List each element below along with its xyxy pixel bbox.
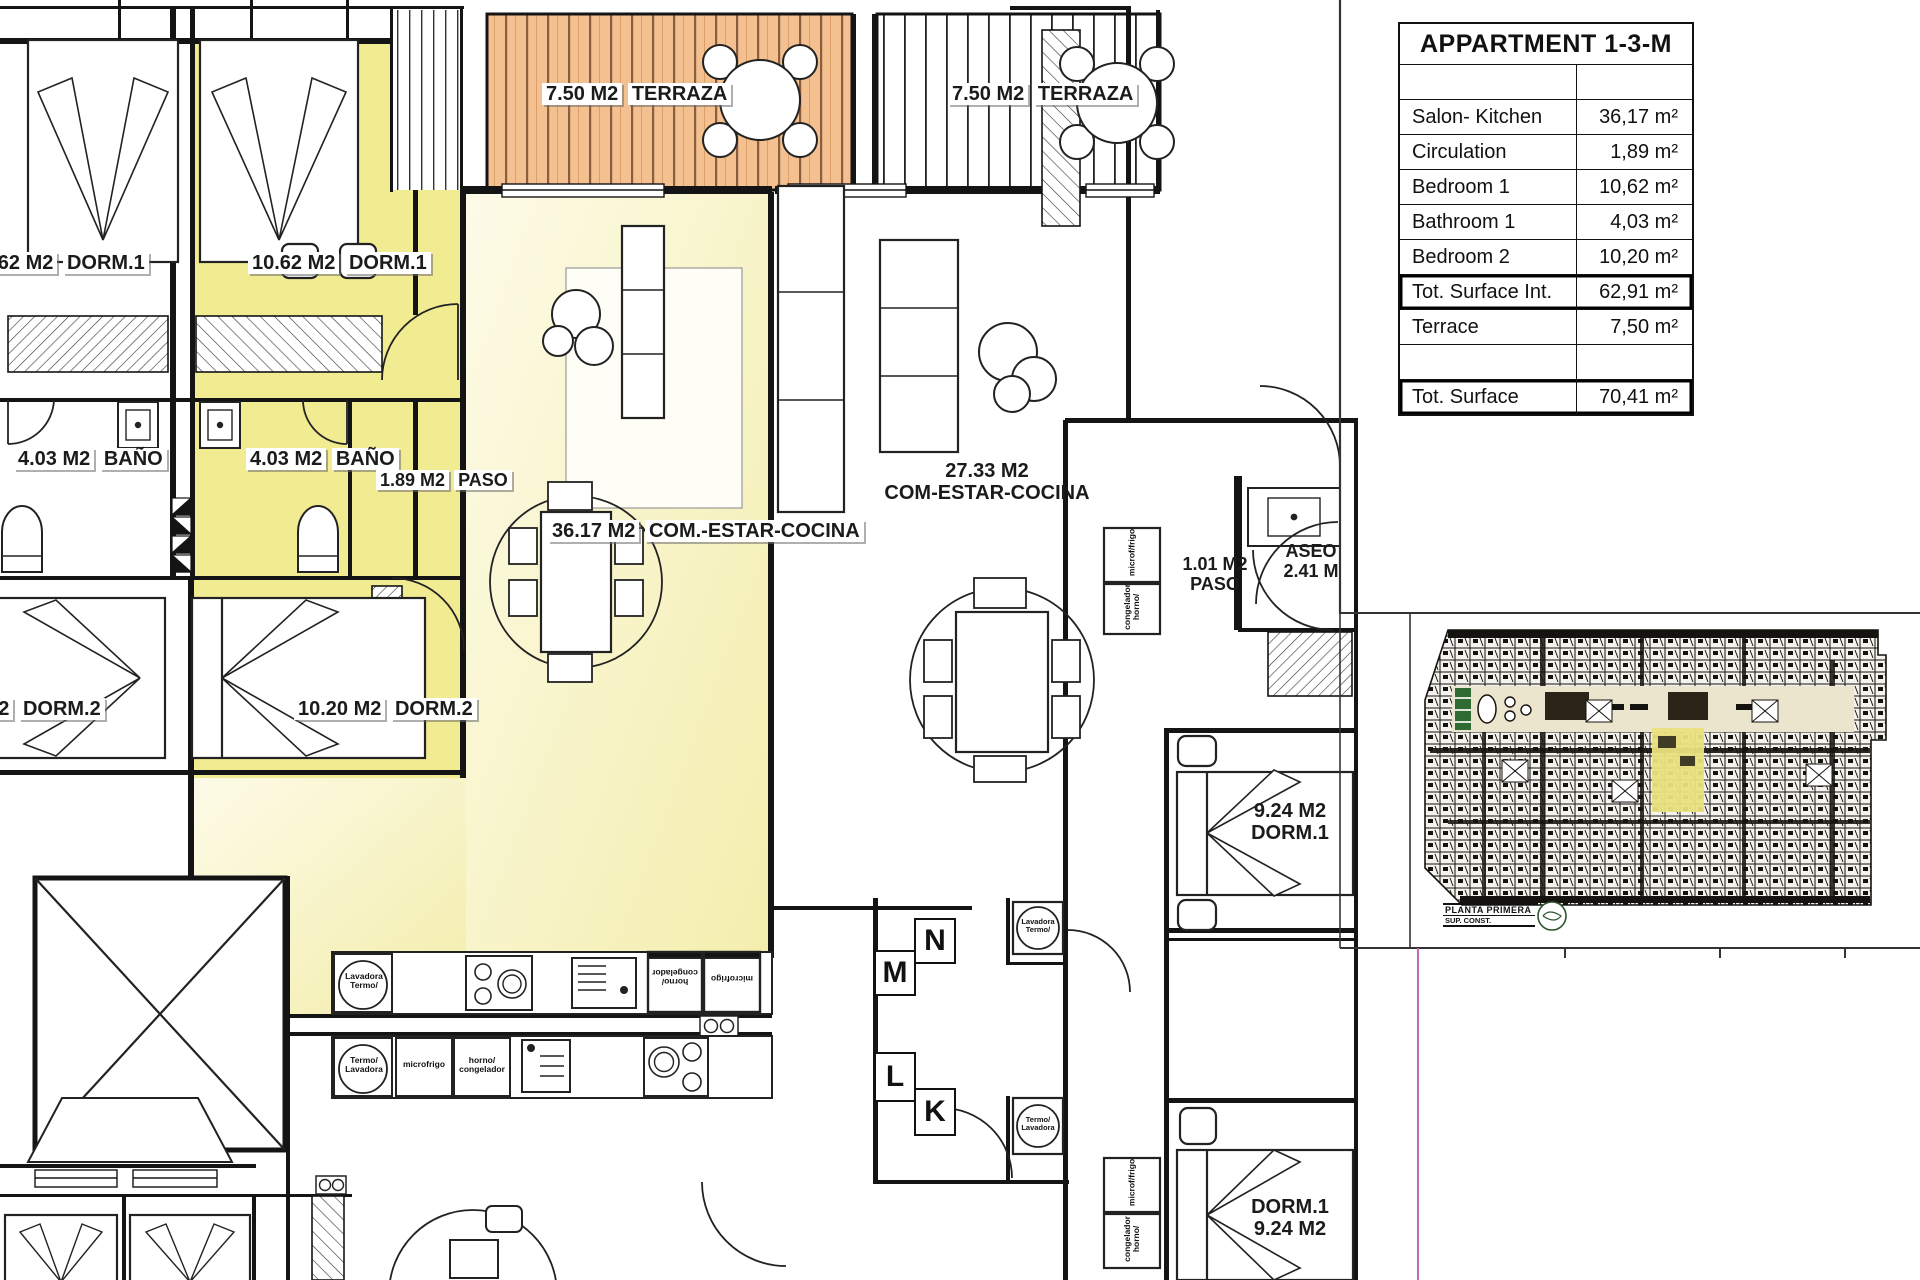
label-m-bathroom: 4.03 M2 BAÑO bbox=[246, 448, 350, 470]
label-right-aseo: ASEO 2.41 M bbox=[1282, 541, 1340, 581]
unit-letter-n: N bbox=[914, 918, 956, 964]
table-row: Terrace7,50 m² bbox=[1400, 310, 1692, 345]
key-plan bbox=[1425, 630, 1886, 930]
table-row-total: Tot. Surface70,41 m² bbox=[1400, 380, 1692, 414]
label-left-bathroom: 4.03 M2 BAÑO bbox=[14, 448, 118, 470]
oven-freezer-label-lower: horno/congelador bbox=[456, 1056, 508, 1074]
washer-label-lower: Termo/Lavadora bbox=[336, 1056, 392, 1074]
freezer-label-k: congeladorhorno/ bbox=[1123, 1211, 1141, 1267]
label-right-hall: 1.01 M2 PASO bbox=[1174, 554, 1256, 594]
kitchen-m bbox=[332, 952, 772, 1036]
key-plan-caption: PLANTA PRIMERA SUP. CONST. bbox=[1443, 903, 1535, 927]
label-m-hall: 1.89 M2 PASO bbox=[376, 470, 464, 490]
surface-table: APPARTMENT 1-3-M Salon- Kitchen36,17 m² … bbox=[1398, 22, 1694, 416]
microfridge-label-lower: microfrigo bbox=[398, 1060, 450, 1069]
table-row: Bedroom 110,62 m² bbox=[1400, 170, 1692, 205]
surface-table-title: APPARTMENT 1-3-M bbox=[1400, 24, 1692, 65]
unit-letter-m: M bbox=[874, 950, 916, 996]
label-m-living: 36.17 M2 COM.-ESTAR-COCINA bbox=[548, 520, 754, 542]
label-right-terrace: 7.50 M2 TERRAZA bbox=[948, 83, 1060, 105]
architect-stamp bbox=[1538, 902, 1566, 930]
table-row: Circulation1,89 m² bbox=[1400, 135, 1692, 170]
washer-label-m: LavadoraTermo/ bbox=[336, 972, 392, 990]
unit-letter-k: K bbox=[914, 1088, 956, 1136]
table-row: Bathroom 14,03 m² bbox=[1400, 205, 1692, 240]
floorplan-page: 10.62 M2 DORM.1 10.62 M2 DORM.1 4.03 M2 … bbox=[0, 0, 1920, 1280]
table-row-spacer bbox=[1400, 65, 1692, 100]
label-m-bedroom1: 10.62 M2 DORM.1 bbox=[248, 252, 372, 274]
label-n-bedroom1: 9.24 M2 DORM.1 bbox=[1240, 800, 1340, 845]
oven-freezer-label-m: horno/congelador bbox=[650, 968, 700, 986]
washer-label-k: Termo/Lavadora bbox=[1014, 1116, 1062, 1132]
fridge-label-right: microf/frigo bbox=[1128, 524, 1137, 580]
freezer-label-right: congeladorhorno/ bbox=[1123, 579, 1141, 635]
label-m-terrace: 7.50 M2 TERRAZA bbox=[542, 83, 652, 105]
label-right-living: 27.33 M2 COM-ESTAR-COCINA bbox=[884, 460, 1090, 505]
unit-letter-l: L bbox=[874, 1052, 916, 1102]
table-row: Salon- Kitchen36,17 m² bbox=[1400, 100, 1692, 135]
label-left-bedroom2: 10.20 M2 DORM.2 bbox=[0, 698, 34, 720]
table-row-spacer bbox=[1400, 345, 1692, 380]
fridge-label-k: microf/frigo bbox=[1128, 1154, 1137, 1210]
louvre-band bbox=[393, 10, 460, 190]
washer-label-n: LavadoraTermo/ bbox=[1014, 918, 1062, 934]
label-k-bedroom1: DORM.1 9.24 M2 bbox=[1238, 1196, 1342, 1241]
label-m-bedroom2: 10.20 M2 DORM.2 bbox=[294, 698, 414, 720]
table-row: Bedroom 210,20 m² bbox=[1400, 240, 1692, 275]
table-row-total-interior: Tot. Surface Int.62,91 m² bbox=[1400, 275, 1692, 310]
label-left-bedroom1: 10.62 M2 DORM.1 bbox=[0, 252, 86, 274]
microfridge-label-m: microfrigo bbox=[706, 974, 758, 983]
